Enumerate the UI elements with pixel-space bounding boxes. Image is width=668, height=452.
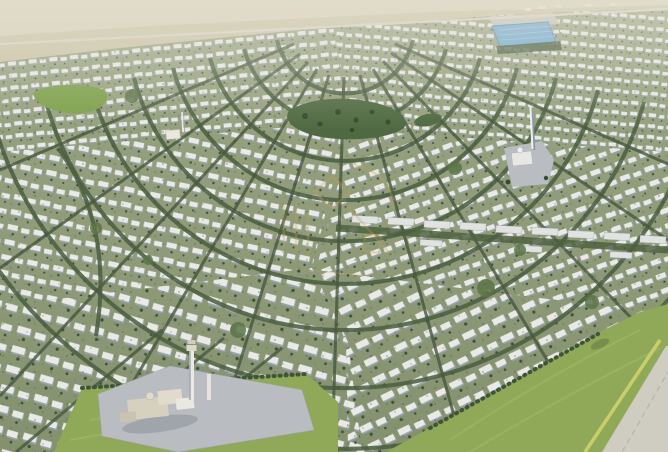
mosque-dome bbox=[517, 147, 523, 153]
secondary-tower bbox=[207, 374, 211, 400]
minaret-balcony bbox=[187, 345, 197, 351]
aerial-render-image bbox=[0, 0, 668, 452]
minaret-cap bbox=[188, 340, 196, 344]
mosque-hall bbox=[511, 151, 532, 166]
haze-overlay bbox=[0, 0, 668, 130]
building-front bbox=[120, 411, 137, 423]
masterplan-scene bbox=[0, 0, 668, 452]
plot-dome bbox=[146, 392, 154, 400]
minaret-shade bbox=[189, 350, 191, 400]
